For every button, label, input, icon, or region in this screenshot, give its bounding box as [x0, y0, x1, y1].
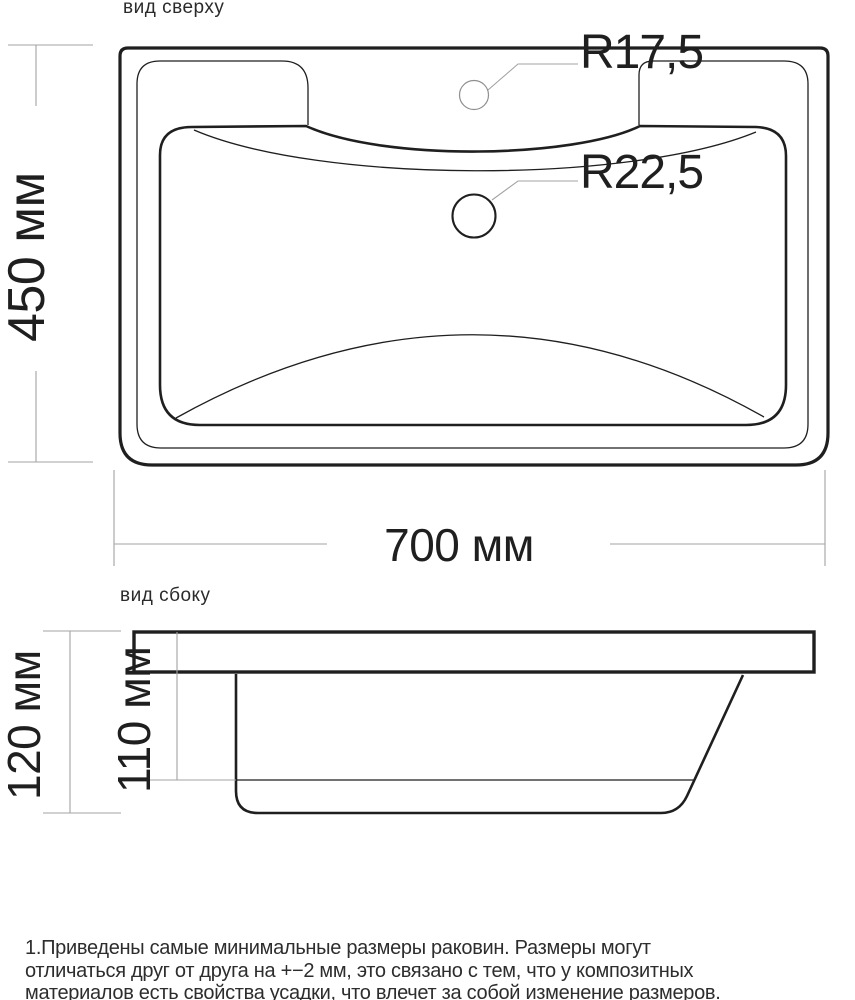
faucet-hole-circle: [460, 81, 489, 110]
note-line: 1.Приведены самые минимальные размеры ра…: [25, 937, 651, 959]
top-view: вид сверху R17,5 R22,5 450 мм 700 мм: [0, 0, 828, 571]
drain-hole-leader-line: [492, 181, 578, 200]
side-view-label: вид сбоку: [120, 585, 211, 606]
top-view-label: вид сверху: [123, 0, 224, 18]
faucet-hole-leader-line: [488, 64, 578, 90]
faucet-hole-radius-label: R17,5: [580, 26, 703, 79]
side-view: вид сбоку 120 мм 110 мм: [0, 585, 814, 813]
total-height-dimension-label: 120 мм: [0, 650, 50, 800]
width-dimension-label: 700 мм: [384, 519, 534, 571]
depth-dimension-label: 450 мм: [0, 172, 56, 342]
top-view-basin-bottom-arc: [176, 335, 764, 418]
notes: 1.Приведены самые минимальные размеры ра…: [25, 937, 721, 1000]
drain-hole-radius-label: R22,5: [580, 146, 703, 199]
side-view-bowl-profile: [236, 674, 743, 813]
bowl-height-dimension-label: 110 мм: [108, 647, 160, 793]
top-view-outer-outline: [120, 48, 828, 465]
note-line: материалов есть свойства усадки, что вле…: [25, 982, 721, 1000]
drain-hole-circle: [453, 195, 496, 238]
sink-dimensions-drawing: вид сверху R17,5 R22,5 450 мм 700 мм вид…: [0, 0, 855, 1000]
side-view-rim-profile: [134, 632, 814, 672]
note-line: отличаться друг от друга на +−2 мм, это …: [25, 960, 694, 982]
top-view-rim-inner-line: [137, 61, 808, 448]
